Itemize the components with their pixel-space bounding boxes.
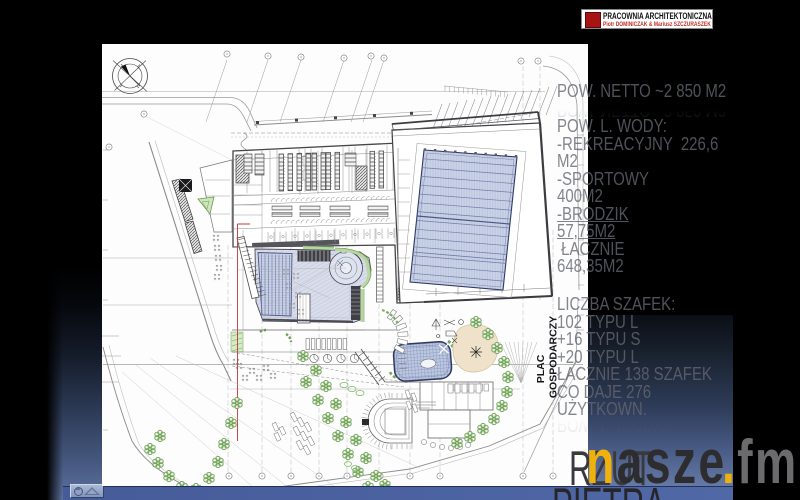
svg-text:PLAC: PLAC — [535, 354, 547, 383]
